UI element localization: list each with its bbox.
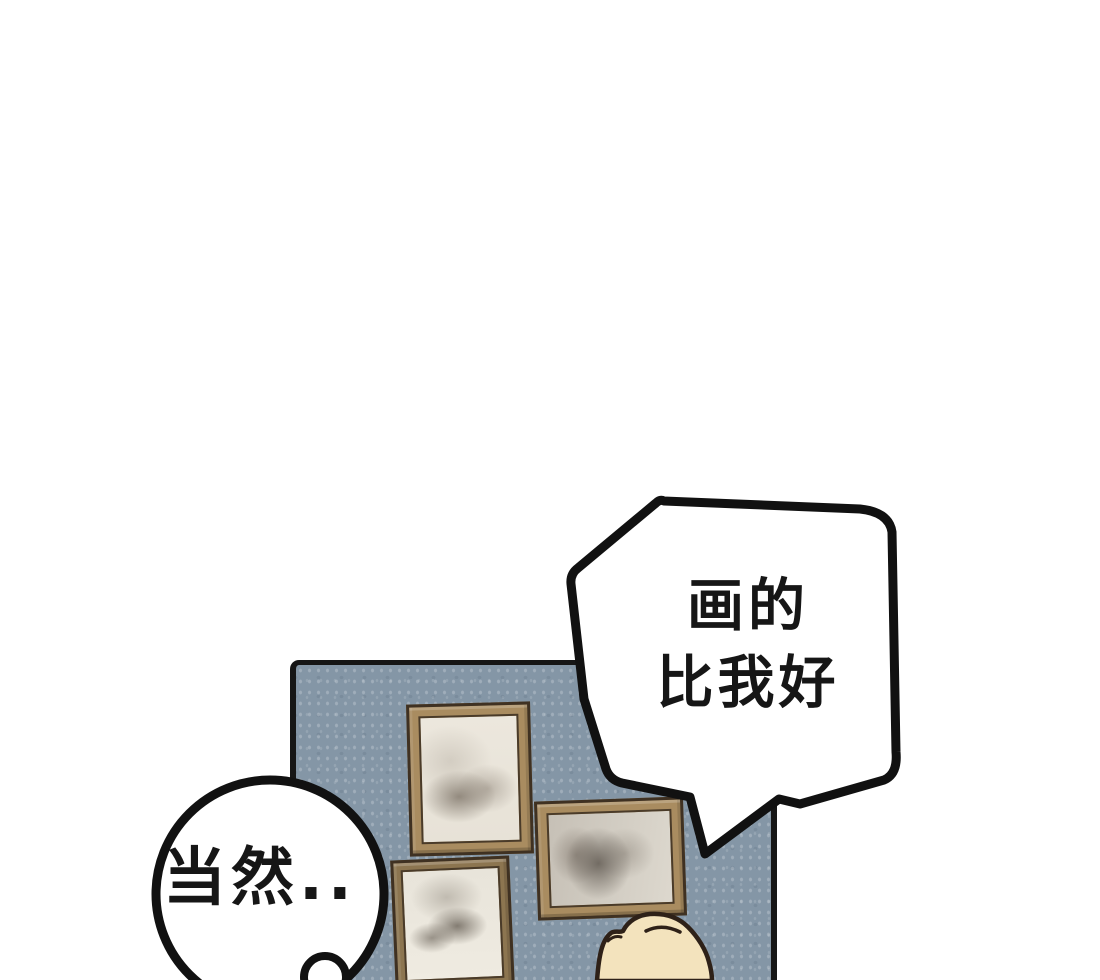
speech-bubble-top-text: 画的 比我好	[600, 568, 896, 722]
framed-picture-3	[401, 866, 505, 980]
picture-frame-top-left	[406, 701, 534, 856]
picture-frame-bottom-left	[390, 855, 515, 980]
speech-line-1: 画的	[600, 568, 896, 645]
comic-panel: 画的 比我好 当然..	[0, 0, 1100, 980]
picture-frame-right	[534, 796, 687, 920]
speech-bubble-bottom-text: 当然..	[163, 843, 357, 913]
framed-picture-2	[546, 809, 674, 908]
framed-picture-1	[418, 714, 521, 845]
speech-line-2: 比我好	[600, 645, 896, 722]
